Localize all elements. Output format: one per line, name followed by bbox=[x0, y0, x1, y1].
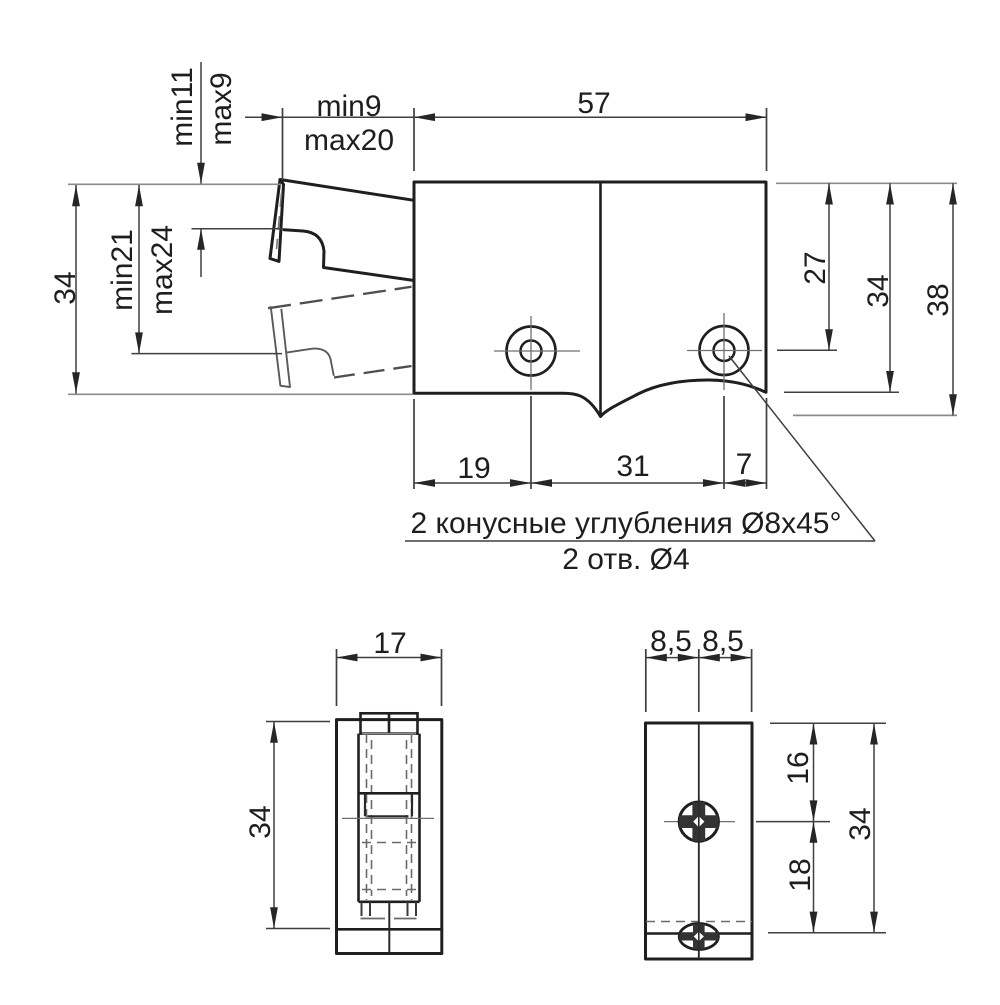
svg-text:7: 7 bbox=[736, 448, 753, 481]
svg-text:34: 34 bbox=[862, 274, 895, 307]
svg-text:min9: min9 bbox=[316, 90, 381, 123]
svg-text:34: 34 bbox=[844, 807, 877, 840]
svg-text:34: 34 bbox=[244, 805, 277, 838]
svg-text:max24: max24 bbox=[146, 225, 179, 315]
svg-text:8,5: 8,5 bbox=[650, 625, 692, 658]
svg-text:16: 16 bbox=[782, 751, 815, 784]
svg-text:18: 18 bbox=[784, 858, 817, 891]
svg-text:2 конусные углубления Ø8х45°: 2 конусные углубления Ø8х45° bbox=[411, 507, 842, 540]
svg-text:min21: min21 bbox=[106, 229, 139, 311]
svg-text:38: 38 bbox=[922, 283, 955, 316]
svg-text:57: 57 bbox=[577, 87, 610, 120]
svg-text:27: 27 bbox=[799, 251, 832, 284]
svg-text:17: 17 bbox=[373, 627, 406, 660]
svg-text:19: 19 bbox=[457, 452, 490, 485]
svg-text:max9: max9 bbox=[205, 72, 238, 145]
svg-text:34: 34 bbox=[49, 271, 82, 304]
svg-text:2 отв. Ø4: 2 отв. Ø4 bbox=[562, 543, 689, 576]
svg-text:31: 31 bbox=[616, 450, 649, 483]
svg-text:min11: min11 bbox=[166, 67, 199, 146]
svg-text:max20: max20 bbox=[304, 124, 394, 157]
svg-text:8,5: 8,5 bbox=[702, 625, 744, 658]
